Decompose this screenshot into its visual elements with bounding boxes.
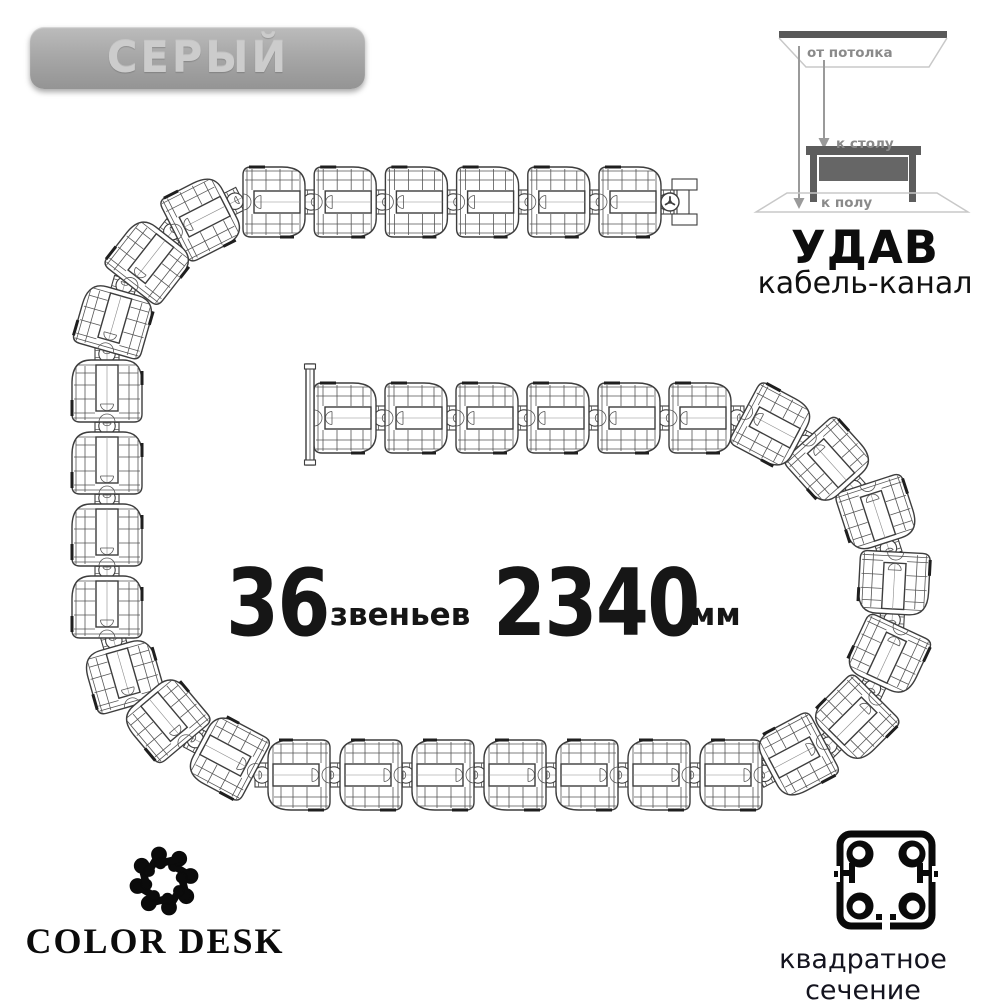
square-section-icon (833, 827, 939, 933)
links-label: звеньев (330, 600, 470, 631)
chain-links (72, 167, 933, 810)
cross-section-label: квадратное сечение (730, 944, 996, 1000)
length-value: 2340 (493, 557, 699, 650)
product-image: СЕРЫЙ от потолка к столу к полу УДАВ каб… (0, 0, 1000, 1000)
chain-end-plate (305, 364, 316, 465)
chain-mount-bracket (661, 179, 697, 225)
links-count: 36 (226, 557, 329, 650)
length-unit: мм (690, 600, 741, 631)
brand-name: COLOR DESK (25, 920, 285, 962)
chain-joints (95, 186, 905, 790)
brand-logo-icon (121, 838, 207, 924)
